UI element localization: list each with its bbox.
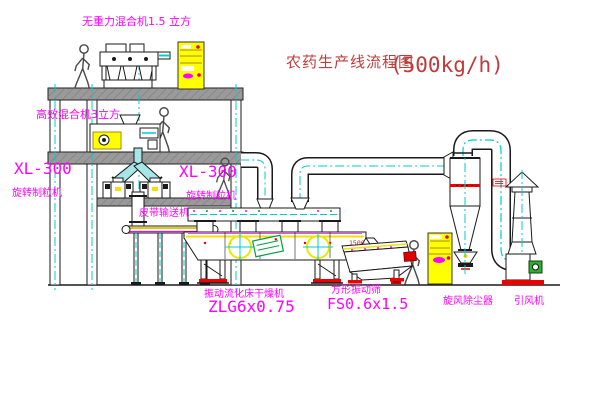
label-gravity-free-mixer: 无重力混合机1.5 立方 <box>82 14 191 28</box>
dryer-feed-duct <box>241 160 273 209</box>
label-belt-conveyor: 皮带输送机 <box>139 206 189 219</box>
pesticide-line-flow-diagram: 无重力混合机1.5 立方 高效混合机3立方 XL-300 旋转制粒机 XL-30… <box>0 0 600 403</box>
label-granulator-right-model: XL-300 <box>179 162 237 181</box>
screen-motor <box>404 251 417 261</box>
gravity-free-mixer <box>100 44 170 88</box>
induced-draft-fan <box>502 254 544 285</box>
label-screen-model: FS0.6x1.5 <box>327 295 408 313</box>
dryer-feet <box>197 260 343 283</box>
cyclone-separator <box>450 146 480 274</box>
label-cyclone: 旋风除尘器 <box>443 294 493 307</box>
square-vibrating-screen <box>342 241 416 284</box>
control-cabinet-2 <box>428 233 452 284</box>
page-title-capacity: (500kg/h) <box>390 53 504 77</box>
exhaust-duct <box>291 152 453 209</box>
label-high-efficiency-mixer: 高效混合机3立方 <box>36 107 120 121</box>
label-granulator-left-name: 旋转制粒机 <box>12 186 62 199</box>
worker-figure <box>75 45 89 88</box>
granulator-left <box>103 178 133 198</box>
dimension-1500: 1500 <box>349 239 365 247</box>
label-fan: 引风机 <box>514 294 544 307</box>
label-granulator-left-model: XL-300 <box>14 159 72 178</box>
diagram-canvas: 无重力混合机1.5 立方 高效混合机3立方 XL-300 旋转制粒机 XL-30… <box>0 0 600 403</box>
label-dryer-model: ZLG6x0.75 <box>208 297 295 316</box>
fan-base <box>502 280 544 285</box>
high-efficiency-mixer <box>90 115 160 155</box>
control-cabinet-1 <box>178 42 204 89</box>
label-granulator-right-name: 旋转制粒机 <box>186 189 236 202</box>
